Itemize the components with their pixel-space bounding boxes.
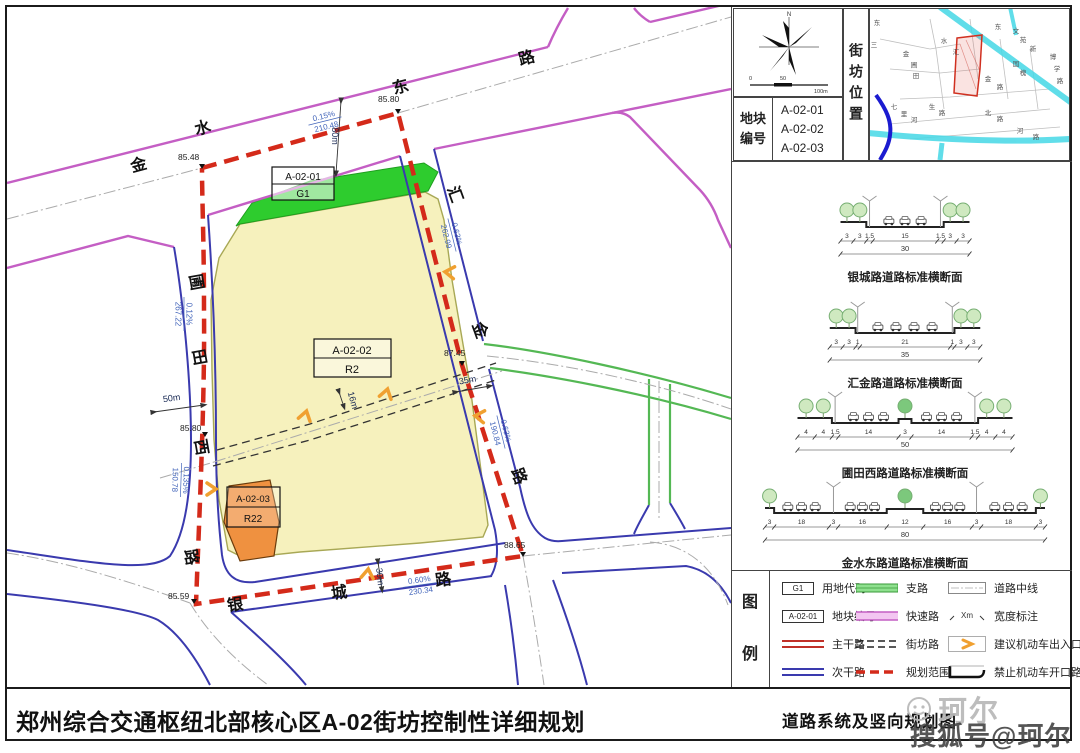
main-map: A-02-01 G1 A-02-02 R2 A-02-03 R22 金水东路汇金…: [7, 7, 731, 687]
svg-text:圃: 圃: [186, 273, 207, 292]
svg-text:汇: 汇: [953, 48, 960, 56]
svg-text:88.65: 88.65: [504, 540, 526, 550]
svg-text:4: 4: [1002, 429, 1006, 436]
svg-text:路: 路: [1057, 76, 1064, 85]
legend-item: 道路中线: [948, 574, 1080, 602]
block-street-swatch: [856, 638, 898, 650]
svg-text:30m: 30m: [374, 567, 386, 585]
vehicle-entrance-swatch: [948, 636, 986, 652]
svg-text:4: 4: [804, 429, 808, 436]
svg-text:文: 文: [1013, 26, 1020, 35]
legend-top-border: [731, 570, 1072, 571]
svg-text:里: 里: [901, 110, 908, 118]
svg-text:路: 路: [997, 82, 1004, 91]
svg-text:Xm: Xm: [961, 611, 973, 620]
arterial-road-swatch: [782, 638, 824, 650]
svg-text:4: 4: [985, 429, 989, 436]
location-inset-cell: 东三金圃田水汇东文苑新国槐博学路金路七里河生路北路河路: [869, 8, 1070, 161]
svg-text:85.59: 85.59: [168, 591, 190, 601]
cross-section-caption: 金水东路道路标准横断面: [740, 555, 1070, 571]
svg-text:路: 路: [1033, 132, 1040, 141]
svg-text:21: 21: [901, 339, 909, 346]
svg-text:30: 30: [901, 244, 909, 253]
svg-text:金: 金: [985, 74, 992, 83]
svg-text:3: 3: [858, 233, 862, 240]
svg-text:15: 15: [901, 233, 909, 240]
legend-item: 支路: [856, 574, 950, 602]
svg-text:1.5: 1.5: [831, 429, 840, 436]
svg-text:西: 西: [191, 438, 212, 457]
svg-text:35m: 35m: [458, 374, 477, 387]
svg-text:4: 4: [821, 429, 825, 436]
svg-text:3: 3: [948, 233, 952, 240]
svg-text:85.80: 85.80: [378, 94, 400, 104]
svg-text:0.135%: 0.135%: [181, 466, 191, 493]
svg-text:生: 生: [929, 102, 936, 111]
svg-text:槐: 槐: [1020, 68, 1027, 77]
inset-site-parcel: [954, 35, 982, 96]
svg-text:3: 3: [903, 429, 907, 436]
svg-text:150.78: 150.78: [170, 467, 180, 492]
legend-column-3: 道路中线 Xm 宽度标注 建议机动车出入口 禁止机动车开口路段: [948, 574, 1080, 686]
svg-text:路: 路: [997, 114, 1004, 123]
svg-text:路: 路: [939, 108, 946, 117]
plan-sheet: A-02-01 G1 A-02-02 R2 A-02-03 R22 金水东路汇金…: [0, 0, 1080, 753]
location-label: 街坊位置: [846, 43, 866, 127]
road-centerline-swatch: [948, 581, 986, 595]
svg-text:田: 田: [913, 72, 920, 80]
svg-text:85.80: 85.80: [180, 423, 202, 433]
legend-item: 规划范围: [856, 658, 950, 686]
svg-text:0.12%: 0.12%: [185, 303, 194, 326]
svg-text:12: 12: [901, 519, 909, 526]
svg-text:新: 新: [1030, 44, 1037, 53]
svg-text:东: 东: [995, 22, 1002, 31]
svg-text:金: 金: [127, 153, 149, 176]
block-code: A-02-03: [236, 494, 270, 505]
legend-title: 图 例: [738, 588, 762, 664]
svg-text:3: 3: [832, 519, 836, 526]
width-annotation-swatch: Xm: [948, 609, 986, 623]
svg-text:3: 3: [975, 519, 979, 526]
svg-text:1: 1: [856, 339, 860, 346]
svg-text:水: 水: [941, 36, 948, 45]
block-label-a0202: A-02-02 R2: [314, 339, 391, 377]
legend-item: 快速路: [856, 602, 950, 630]
block-use: R22: [244, 514, 263, 525]
branch-road-swatch: [856, 582, 898, 594]
legend-title-divider: [769, 570, 770, 687]
svg-text:50m: 50m: [162, 392, 181, 404]
legend-column-2: 支路 快速路 街坊路 规划范围: [856, 574, 950, 686]
svg-text:水: 水: [192, 116, 213, 139]
north-arrow: N 0 50 100m: [734, 9, 842, 96]
svg-text:18: 18: [1005, 519, 1013, 526]
block-number-3: A-02-03: [781, 139, 842, 158]
block-label-a0203: A-02-03 R22: [227, 487, 280, 527]
svg-text:路: 路: [508, 465, 532, 487]
legend-item: 街坊路: [856, 630, 950, 658]
block-number-label: 地块编号: [739, 109, 767, 149]
land-use-code-swatch: G1: [782, 582, 814, 595]
svg-text:苑: 苑: [1020, 35, 1027, 44]
svg-text:80: 80: [901, 530, 909, 539]
panel-divider: [731, 7, 732, 687]
svg-text:1.5: 1.5: [970, 429, 979, 436]
svg-text:东: 东: [874, 18, 881, 27]
svg-text:路: 路: [434, 569, 453, 590]
svg-text:16: 16: [859, 519, 867, 526]
svg-text:267.22: 267.22: [174, 302, 183, 327]
svg-text:河: 河: [1017, 127, 1024, 135]
svg-text:七: 七: [891, 102, 898, 111]
svg-text:圃: 圃: [911, 61, 918, 69]
svg-text:三: 三: [871, 41, 878, 49]
location-strip: 街坊位置: [843, 8, 869, 161]
scale-tick-50: 50: [780, 76, 786, 82]
svg-text:城: 城: [330, 583, 348, 603]
expressway-swatch: [856, 610, 898, 622]
compass-star-icon: [762, 21, 812, 75]
north-arrow-cell: N 0 50 100m: [733, 8, 843, 97]
svg-text:河: 河: [911, 116, 918, 124]
cross-section-jinshuidong: 3183161216318380 金水东路道路标准横断面: [740, 461, 1070, 571]
main-title: 郑州综合交通枢纽北部核心区A-02街坊控制性详细规划: [16, 703, 585, 737]
block-code: A-02-01: [285, 172, 321, 183]
block-label-a0201: A-02-01 G1: [272, 167, 334, 200]
location-inset-map: 东三金圃田水汇东文苑新国槐博学路金路七里河生路北路河路: [870, 9, 1069, 160]
watermark-dark: 搜狐号@珂尔: [910, 716, 1071, 753]
svg-text:14: 14: [938, 429, 946, 436]
svg-text:1.5: 1.5: [865, 233, 874, 240]
svg-text:3: 3: [1039, 519, 1043, 526]
svg-text:金: 金: [903, 49, 910, 58]
svg-text:学: 学: [1054, 64, 1061, 73]
legend-item: Xm 宽度标注: [948, 602, 1080, 630]
legend-item: 禁止机动车开口路段: [948, 658, 1080, 686]
svg-text:田: 田: [189, 348, 210, 367]
svg-text:3: 3: [959, 339, 963, 346]
scale-tick-0: 0: [749, 76, 752, 82]
panel-row-divider: [731, 161, 1072, 162]
block-use: G1: [296, 189, 310, 200]
planning-boundary-swatch: [856, 666, 898, 678]
block-number-2: A-02-02: [781, 120, 842, 139]
svg-text:北: 北: [985, 109, 992, 117]
block-number-1: A-02-01: [781, 101, 842, 120]
svg-text:1: 1: [950, 339, 954, 346]
svg-text:3: 3: [768, 519, 772, 526]
svg-text:50: 50: [901, 440, 909, 449]
inset-river: [876, 95, 890, 160]
legend-item: 建议机动车出入口: [948, 630, 1080, 658]
block-use: R2: [345, 364, 359, 376]
svg-text:国: 国: [1013, 60, 1020, 68]
svg-text:35: 35: [901, 350, 909, 359]
svg-text:14: 14: [865, 429, 873, 436]
svg-text:3: 3: [847, 339, 851, 346]
svg-text:85.48: 85.48: [178, 152, 200, 162]
svg-text:18: 18: [798, 519, 806, 526]
scale-tick-100m: 100m: [814, 89, 828, 95]
block-number-cell: 地块编号 A-02-01 A-02-02 A-02-03: [733, 97, 843, 161]
block-code: A-02-02: [332, 345, 371, 357]
svg-text:3: 3: [834, 339, 838, 346]
legend-title-char: 例: [742, 640, 758, 664]
svg-text:博: 博: [1050, 52, 1057, 61]
north-label: N: [787, 12, 791, 18]
svg-text:1.5: 1.5: [936, 233, 945, 240]
svg-text:3: 3: [972, 339, 976, 346]
svg-text:金: 金: [468, 318, 492, 341]
no-opening-swatch: [948, 664, 986, 680]
legend-title-char: 图: [742, 588, 758, 612]
svg-text:87.45: 87.45: [444, 348, 466, 358]
svg-text:16: 16: [944, 519, 952, 526]
svg-text:3: 3: [845, 233, 849, 240]
secondary-road-swatch: [782, 666, 824, 678]
cross-section-yincheng: 331.5151.53330 银城路道路标准横断面: [740, 175, 1070, 285]
svg-text:3: 3: [961, 233, 965, 240]
block-number-swatch: A-02-01: [782, 610, 824, 623]
